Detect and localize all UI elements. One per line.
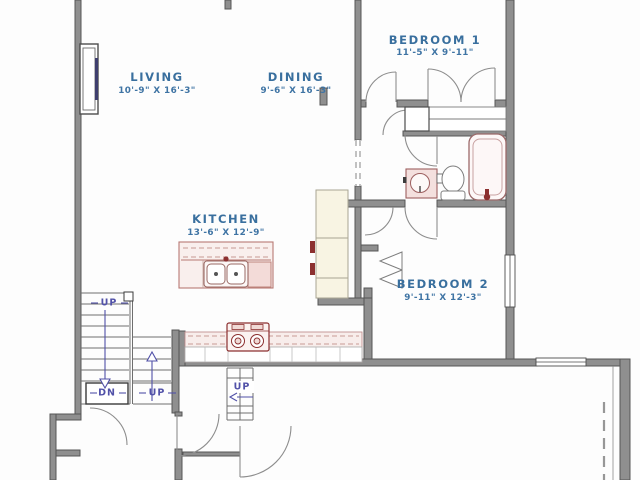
floor-plan: LIVING 10'-9" X 16'-3" DINING 9'-6" X 16… xyxy=(0,0,640,480)
door-arc-bedroom2 xyxy=(405,207,437,239)
up-arrow-icon xyxy=(147,352,157,361)
bathtub-icon xyxy=(469,134,506,200)
tub-faucet-icon xyxy=(484,194,490,200)
wall-pantry-bottom xyxy=(318,298,364,305)
wall-top-stub xyxy=(225,0,231,9)
door-arc-bathroom xyxy=(405,134,437,166)
room-dims-bedroom1: 11'-5" X 9'-11" xyxy=(396,48,474,58)
wall-bath-bottom-b xyxy=(437,200,506,207)
door-arc-closet-right xyxy=(461,68,495,102)
dishwasher-icon xyxy=(248,262,271,287)
door-arc-entry-b xyxy=(240,426,291,477)
wall-closet2-top-stub xyxy=(361,245,378,251)
door-arc-stairwell xyxy=(90,408,127,445)
fridge-handle-icon xyxy=(310,241,315,253)
wall-bed1-bottom-a xyxy=(361,100,366,107)
wall-right-outer xyxy=(506,0,514,366)
wall-bath-bottom-a xyxy=(348,200,405,207)
island-sink-icon xyxy=(204,256,248,287)
kitchen-island xyxy=(179,242,273,288)
stairs-entry xyxy=(227,368,254,420)
fireplace-window-bay xyxy=(80,44,98,114)
room-label-dining: DINING xyxy=(268,70,324,84)
range-cooktop-icon xyxy=(227,323,269,351)
room-label-bedroom2: BEDROOM 2 xyxy=(397,277,489,291)
linen-closet xyxy=(405,107,429,131)
room-dims-dining: 9'-6" X 16'-3" xyxy=(261,86,332,96)
dashed-wall-opening xyxy=(355,140,361,186)
wall-porch-stub xyxy=(56,450,80,456)
kitchen-counter xyxy=(185,323,362,362)
wall-left-lower xyxy=(50,414,56,480)
wall-bed1-bottom-c xyxy=(495,100,506,107)
window-pane-icon xyxy=(95,58,98,100)
wall-counter-endcap xyxy=(179,331,185,366)
room-label-bedroom1: BEDROOM 1 xyxy=(389,33,481,47)
entry-up-arrow xyxy=(230,393,253,401)
door-arc-bedroom1 xyxy=(366,72,396,102)
door-arc-hallway xyxy=(365,207,393,235)
newel-post xyxy=(124,292,133,301)
wall-entry-left xyxy=(175,449,182,480)
faucet-icon xyxy=(223,256,228,261)
room-label-kitchen: KITCHEN xyxy=(192,212,260,226)
window-bottom-wall xyxy=(536,358,586,366)
toilet-icon xyxy=(441,166,465,200)
window-bedroom2 xyxy=(505,255,515,307)
bath-vanity-icon xyxy=(403,169,444,198)
room-dims-living: 10'-9" X 16'-3" xyxy=(118,86,196,96)
door-arc-entry-a xyxy=(177,414,219,456)
wall-bed1-bottom-b xyxy=(397,100,428,107)
room-label-living: LIVING xyxy=(130,70,183,84)
stair-label-dn: DN xyxy=(98,388,116,399)
stair-label-up-basement: UP xyxy=(149,388,166,399)
door-arc-closet-left xyxy=(428,69,461,102)
closet-bedroom1 xyxy=(405,107,506,131)
fridge-handle-icon xyxy=(310,263,315,275)
stair-label-up-entry: UP xyxy=(234,382,251,393)
wall-bed1-left-upper xyxy=(355,0,361,140)
wall-kitchen-bed2-divider xyxy=(364,298,372,359)
room-dims-kitchen: 13'-6" X 12'-9" xyxy=(187,228,265,238)
stair-label-up-main: UP xyxy=(101,298,118,309)
wall-stairwell-right xyxy=(172,330,179,413)
pantry-refrigerator xyxy=(310,190,348,298)
room-dims-bedroom2: 9'-11" X 12'-3" xyxy=(404,293,482,303)
wall-entry-stub xyxy=(175,412,182,416)
wall-deck-right xyxy=(620,359,630,480)
left-arrow-icon xyxy=(230,393,237,401)
deck-outline xyxy=(604,366,613,480)
